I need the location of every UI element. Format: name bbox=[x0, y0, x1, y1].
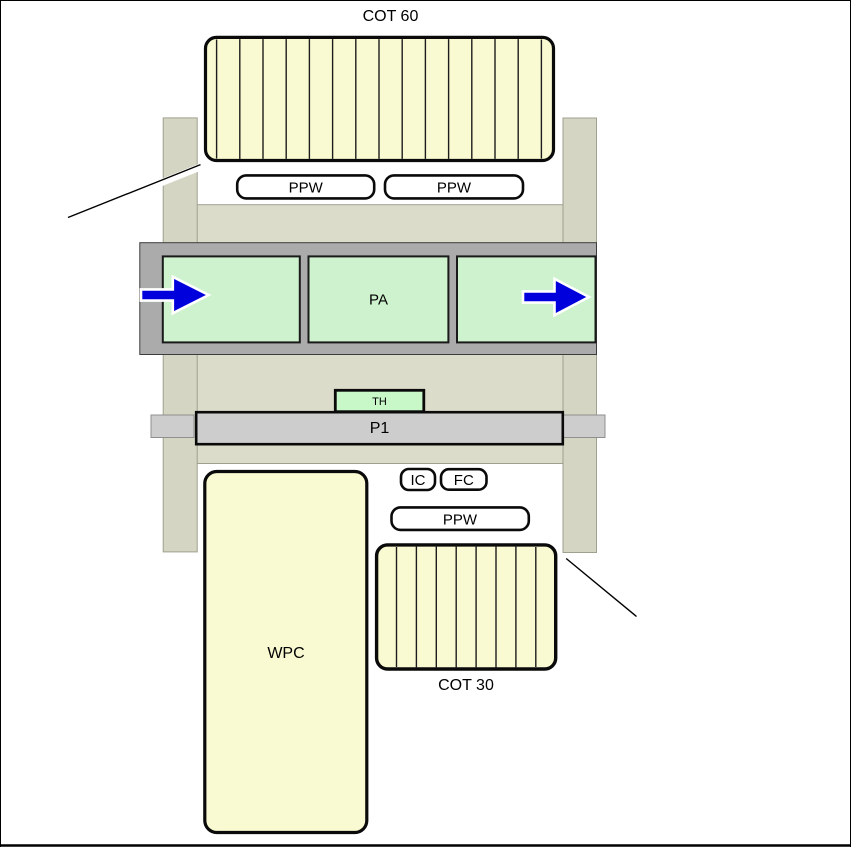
svg-text:PPW: PPW bbox=[443, 511, 478, 528]
svg-text:PPW: PPW bbox=[289, 180, 324, 197]
svg-text:COT 30: COT 30 bbox=[438, 677, 494, 694]
svg-text:TH: TH bbox=[372, 396, 387, 408]
svg-text:PA: PA bbox=[369, 292, 388, 309]
svg-text:WPC: WPC bbox=[267, 645, 304, 662]
svg-text:IC: IC bbox=[411, 472, 426, 489]
svg-text:P1: P1 bbox=[370, 420, 390, 437]
svg-text:PPW: PPW bbox=[437, 180, 472, 197]
svg-text:COT 60: COT 60 bbox=[363, 8, 419, 25]
svg-text:FC: FC bbox=[454, 472, 474, 489]
